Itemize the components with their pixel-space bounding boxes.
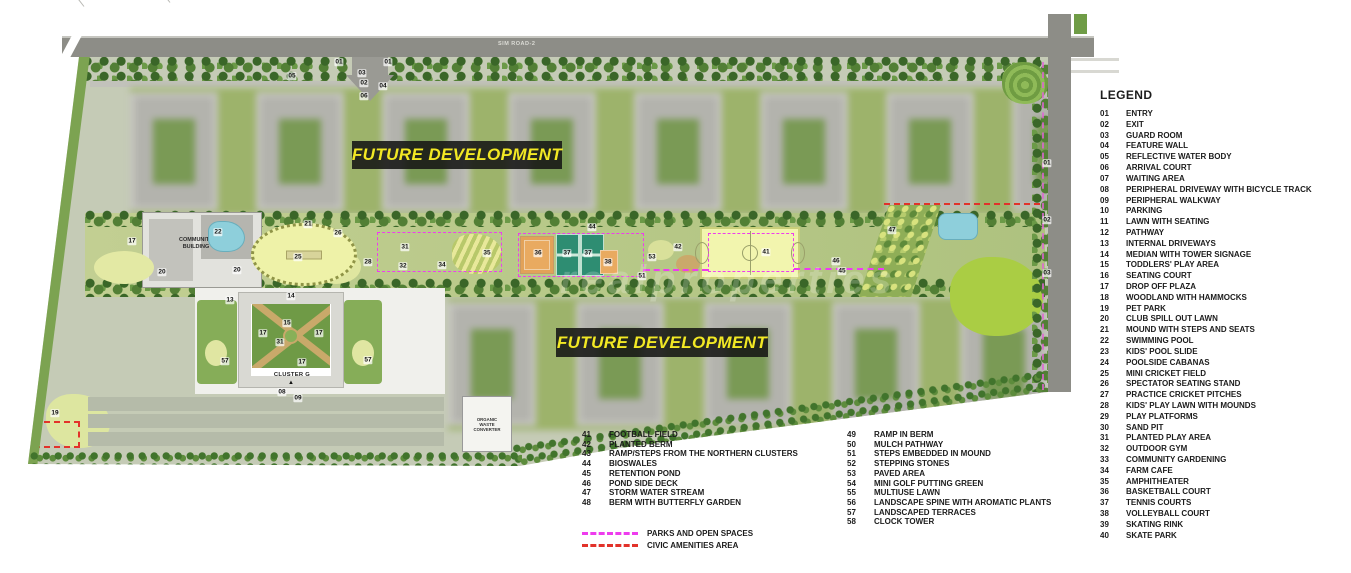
legend-item-label: SWIMMING POOL xyxy=(1126,336,1348,347)
legend-item: 58 CLOCK TOWER xyxy=(847,517,1107,527)
legend-item: 55 MULTIUSE LAWN xyxy=(847,488,1107,498)
legend-item-label: POND SIDE DECK xyxy=(609,479,678,489)
legend-list: 01 ENTRY 02 EXIT 03 GUARD ROOM 04 FEATUR… xyxy=(1100,109,1348,542)
parks-legend-label: PARKS AND OPEN SPACES xyxy=(647,529,753,538)
legend-item: 49 RAMP IN BERM xyxy=(847,430,1107,440)
legend-item-number: 48 xyxy=(582,498,609,508)
building-courtyard xyxy=(783,119,825,184)
legend-item-label: GUARD ROOM xyxy=(1126,131,1348,142)
legend-item-number: 12 xyxy=(1100,228,1126,239)
legend-item-label: DROP OFF PLAZA xyxy=(1126,282,1348,293)
legend-item-label: STEPPING STONES xyxy=(874,459,949,469)
road-median xyxy=(1074,14,1087,34)
legend-item-number: 07 xyxy=(1100,174,1126,185)
legend-item: 54 MINI GOLF PUTTING GREEN xyxy=(847,479,1107,489)
legend-item: 41 FOOTBALL FIELD xyxy=(582,430,842,440)
legend-item: 18 WOODLAND WITH HAMMOCKS xyxy=(1100,293,1348,304)
legend-item-label: SKATING RINK xyxy=(1126,520,1348,531)
legend-item: 57 LANDSCAPED TERRACES xyxy=(847,508,1107,518)
parks-open-space-boundary xyxy=(644,269,708,271)
entry-driveway xyxy=(352,57,388,77)
legend-item-number: 18 xyxy=(1100,293,1126,304)
legend-item-label: BIOSWALES xyxy=(609,459,657,469)
legend-item-label: AMPHITHEATER xyxy=(1126,477,1348,488)
legend-item-number: 16 xyxy=(1100,271,1126,282)
legend-item-label: VOLLEYBALL COURT xyxy=(1126,509,1348,520)
legend-item-label: PERIPHERAL WALKWAY xyxy=(1126,196,1348,207)
legend-item: 51 STEPS EMBEDDED IN MOUND xyxy=(847,449,1107,459)
legend-item-number: 25 xyxy=(1100,369,1126,380)
legend-item-label: PET PARK xyxy=(1126,304,1348,315)
parks-dash-sample xyxy=(582,532,638,535)
legend-item: 45 RETENTION POND xyxy=(582,469,842,479)
peripheral-driveway xyxy=(90,81,1040,87)
legend-item: 04 FEATURE WALL xyxy=(1100,141,1348,152)
building-courtyard xyxy=(153,119,195,184)
legend-title: LEGEND xyxy=(1100,88,1348,102)
legend-item-label: FOOTBALL FIELD xyxy=(609,430,678,440)
road-stub xyxy=(1071,58,1119,61)
north-pointer: ▲ xyxy=(288,380,294,386)
road-stub xyxy=(1071,70,1119,73)
legend-item-label: RAMP IN BERM xyxy=(874,430,933,440)
legend-item-label: MEDIAN WITH TOWER SIGNAGE xyxy=(1126,250,1348,261)
legend-item-label: CLOCK TOWER xyxy=(874,517,934,527)
parks-open-space-boundary xyxy=(1042,62,1044,390)
legend-item: 39 SKATING RINK xyxy=(1100,520,1348,531)
tree-lined-parking-row xyxy=(88,432,444,446)
building-block xyxy=(634,92,722,211)
legend-item-number: 22 xyxy=(1100,336,1126,347)
legend-item-label: SAND PIT xyxy=(1126,423,1348,434)
cricket-pitch xyxy=(286,250,322,259)
legend-item-label: STEPS EMBEDDED IN MOUND xyxy=(874,449,991,459)
legend-item-number: 52 xyxy=(847,459,874,469)
parks-open-space-boundary xyxy=(377,232,502,272)
legend-item: 34 FARM CAFE xyxy=(1100,466,1348,477)
legend-item-label: MINI CRICKET FIELD xyxy=(1126,369,1348,380)
legend-item: 19 PET PARK xyxy=(1100,304,1348,315)
legend-item: 09 PERIPHERAL WALKWAY xyxy=(1100,196,1348,207)
legend-item-number: 08 xyxy=(1100,185,1126,196)
civic-legend-label: CIVIC AMENITIES AREA xyxy=(647,541,738,550)
parks-legend-row: PARKS AND OPEN SPACES xyxy=(582,527,753,539)
legend-item-number: 05 xyxy=(1100,152,1126,163)
legend-item: 15 TODDLERS' PLAY AREA xyxy=(1100,260,1348,271)
sim-road xyxy=(62,36,1094,57)
civic-dash-sample xyxy=(582,544,638,547)
civic-legend-row: CIVIC AMENITIES AREA xyxy=(582,539,753,551)
legend-item-number: 43 xyxy=(582,449,609,459)
legend-item-label: PRACTICE CRICKET PITCHES xyxy=(1126,390,1348,401)
site-plan-page: SIM ROAD-2 xyxy=(0,0,1351,573)
future-development-label-south: FUTURE DEVELOPMENT xyxy=(556,328,768,357)
legend-item-label: BASKETBALL COURT xyxy=(1126,487,1348,498)
legend-item: 46 POND SIDE DECK xyxy=(582,479,842,489)
legend-item-label: LAWN WITH SEATING xyxy=(1126,217,1348,228)
legend-item: 48 BERM WITH BUTTERFLY GARDEN xyxy=(582,498,842,508)
side-road xyxy=(1048,14,1071,392)
legend-item: 22 SWIMMING POOL xyxy=(1100,336,1348,347)
legend-item-label: COMMUNITY GARDENING xyxy=(1126,455,1348,466)
survey-line xyxy=(41,0,85,7)
mini-cricket-field xyxy=(251,223,357,286)
legend-item-number: 23 xyxy=(1100,347,1126,358)
building-wing xyxy=(239,304,251,376)
legend-panel: LEGEND 01 ENTRY 02 EXIT 03 GUARD ROOM xyxy=(1100,88,1348,542)
legend-item: 03 GUARD ROOM xyxy=(1100,131,1348,142)
legend-item-label: PLAY PLATFORMS xyxy=(1126,412,1348,423)
legend-item: 36 BASKETBALL COURT xyxy=(1100,487,1348,498)
facility-legend-column-b: 49 RAMP IN BERM 50 MULCH PATHWAY 51 STEP… xyxy=(847,430,1107,527)
legend-item-number: 44 xyxy=(582,459,609,469)
building-courtyard xyxy=(279,119,321,184)
legend-item: 11 LAWN WITH SEATING xyxy=(1100,217,1348,228)
legend-item-label: INTERNAL DRIVEWAYS xyxy=(1126,239,1348,250)
legend-item-number: 10 xyxy=(1100,206,1126,217)
legend-item-number: 11 xyxy=(1100,217,1126,228)
parks-open-space-boundary xyxy=(794,268,884,270)
legend-item-number: 19 xyxy=(1100,304,1126,315)
legend-item-number: 51 xyxy=(847,449,874,459)
organic-waste-label: ORGANIC WASTE CONVERTER xyxy=(470,417,504,432)
legend-item-label: REFLECTIVE WATER BODY xyxy=(1126,152,1348,163)
tree-lined-parking-row xyxy=(88,397,444,411)
legend-item-label: LANDSCAPED TERRACES xyxy=(874,508,976,518)
building-block xyxy=(130,92,218,211)
legend-item-number: 29 xyxy=(1100,412,1126,423)
building-wing xyxy=(331,304,343,376)
legend-item: 37 TENNIS COURTS xyxy=(1100,498,1348,509)
civic-amenities-boundary xyxy=(884,203,1040,205)
field-arc xyxy=(695,242,709,264)
garden-lawn xyxy=(205,340,227,366)
legend-item-number: 40 xyxy=(1100,531,1126,542)
legend-item: 21 MOUND WITH STEPS AND SEATS xyxy=(1100,325,1348,336)
legend-item: 30 SAND PIT xyxy=(1100,423,1348,434)
legend-item-number: 50 xyxy=(847,440,874,450)
legend-item-number: 14 xyxy=(1100,250,1126,261)
organic-waste-converter: ORGANIC WASTE CONVERTER xyxy=(462,396,512,452)
legend-item-number: 27 xyxy=(1100,390,1126,401)
legend-item-number: 49 xyxy=(847,430,874,440)
legend-item-number: 55 xyxy=(847,488,874,498)
legend-item: 23 KIDS' POOL SLIDE xyxy=(1100,347,1348,358)
building-courtyard xyxy=(909,119,951,184)
building-block xyxy=(886,92,974,211)
legend-item-label: MULTIUSE LAWN xyxy=(874,488,940,498)
legend-item: 29 PLAY PLATFORMS xyxy=(1100,412,1348,423)
building-block xyxy=(256,92,344,211)
legend-item: 12 PATHWAY xyxy=(1100,228,1348,239)
legend-item: 20 CLUB SPILL OUT LAWN xyxy=(1100,314,1348,325)
building-courtyard xyxy=(657,119,699,184)
legend-item: 17 DROP OFF PLAZA xyxy=(1100,282,1348,293)
legend-item-label: ENTRY xyxy=(1126,109,1348,120)
legend-item-label: TODDLERS' PLAY AREA xyxy=(1126,260,1348,271)
legend-item: 47 STORM WATER STREAM xyxy=(582,488,842,498)
legend-item: 40 SKATE PARK xyxy=(1100,531,1348,542)
legend-item-number: 56 xyxy=(847,498,874,508)
legend-item-number: 58 xyxy=(847,517,874,527)
legend-item-label: PATHWAY xyxy=(1126,228,1348,239)
legend-item: 16 SEATING COURT xyxy=(1100,271,1348,282)
legend-item-label: PLANTED BERM xyxy=(609,440,673,450)
legend-item: 08 PERIPHERAL DRIVEWAY WITH BICYCLE TRAC… xyxy=(1100,185,1348,196)
legend-item: 52 STEPPING STONES xyxy=(847,459,1107,469)
legend-item: 27 PRACTICE CRICKET PITCHES xyxy=(1100,390,1348,401)
future-development-block-row-north xyxy=(130,88,1045,215)
building-roof xyxy=(149,219,193,281)
legend-item-label: PARKING xyxy=(1126,206,1348,217)
parks-open-space-boundary xyxy=(708,233,794,272)
legend-item-number: 01 xyxy=(1100,109,1126,120)
paved-area xyxy=(648,240,674,260)
legend-item: 02 EXIT xyxy=(1100,120,1348,131)
legend-item: 01 ENTRY xyxy=(1100,109,1348,120)
future-development-label-north: FUTURE DEVELOPMENT xyxy=(352,141,562,169)
cluster-garden xyxy=(344,300,382,384)
legend-item-number: 57 xyxy=(847,508,874,518)
survey-line xyxy=(131,0,170,3)
area-type-legend: PARKS AND OPEN SPACES CIVIC AMENITIES AR… xyxy=(582,527,753,551)
legend-item-label: SKATE PARK xyxy=(1126,531,1348,542)
legend-item-number: 24 xyxy=(1100,358,1126,369)
legend-item-number: 54 xyxy=(847,479,874,489)
legend-item: 56 LANDSCAPE SPINE WITH AROMATIC PLANTS xyxy=(847,498,1107,508)
courtyard-center xyxy=(283,328,299,344)
legend-item: 38 VOLLEYBALL COURT xyxy=(1100,509,1348,520)
legend-item: 14 MEDIAN WITH TOWER SIGNAGE xyxy=(1100,250,1348,261)
legend-item-label: MINI GOLF PUTTING GREEN xyxy=(874,479,983,489)
legend-item-label: OUTDOOR GYM xyxy=(1126,444,1348,455)
legend-item-label: SEATING COURT xyxy=(1126,271,1348,282)
legend-item: 25 MINI CRICKET FIELD xyxy=(1100,369,1348,380)
legend-item-number: 41 xyxy=(582,430,609,440)
legend-item: 06 ARRIVAL COURT xyxy=(1100,163,1348,174)
legend-item: 32 OUTDOOR GYM xyxy=(1100,444,1348,455)
legend-item: 26 SPECTATOR SEATING STAND xyxy=(1100,379,1348,390)
legend-item-label: MULCH PATHWAY xyxy=(874,440,943,450)
legend-item-label: ARRIVAL COURT xyxy=(1126,163,1348,174)
legend-item-label: POOLSIDE CABANAS xyxy=(1126,358,1348,369)
swimming-pool xyxy=(208,221,245,252)
arrival-court xyxy=(346,75,394,101)
legend-item: 33 COMMUNITY GARDENING xyxy=(1100,455,1348,466)
spill-out-lawn xyxy=(94,251,154,284)
legend-item-label: STORM WATER STREAM xyxy=(609,488,704,498)
legend-item-number: 02 xyxy=(1100,120,1126,131)
legend-item: 50 MULCH PATHWAY xyxy=(847,440,1107,450)
legend-item-label: WOODLAND WITH HAMMOCKS xyxy=(1126,293,1348,304)
building-courtyard xyxy=(855,329,897,399)
tree-row-top xyxy=(82,56,1040,81)
legend-item-label: KIDS' PLAY LAWN WITH MOUNDS xyxy=(1126,401,1348,412)
building-block xyxy=(760,92,848,211)
legend-item-number: 47 xyxy=(582,488,609,498)
retention-pond xyxy=(938,213,978,240)
legend-item-number: 09 xyxy=(1100,196,1126,207)
legend-item-number: 53 xyxy=(847,469,874,479)
garden-lawn xyxy=(352,340,374,366)
road-name-label: SIM ROAD-2 xyxy=(498,41,535,47)
community-building xyxy=(142,212,262,288)
legend-item-label: SPECTATOR SEATING STAND xyxy=(1126,379,1348,390)
legend-item-number: 21 xyxy=(1100,325,1126,336)
legend-item: 31 PLANTED PLAY AREA xyxy=(1100,433,1348,444)
legend-item-number: 06 xyxy=(1100,163,1126,174)
legend-item-label: RETENTION POND xyxy=(609,469,681,479)
legend-item-number: 28 xyxy=(1100,401,1126,412)
parks-open-space-boundary xyxy=(518,233,644,277)
legend-item-number: 46 xyxy=(582,479,609,489)
legend-item: 43 RAMP/STEPS FROM THE NORTHERN CLUSTERS xyxy=(582,449,842,459)
legend-item-label: EXIT xyxy=(1126,120,1348,131)
legend-item: 44 BIOSWALES xyxy=(582,459,842,469)
legend-item-label: PERIPHERAL DRIVEWAY WITH BICYCLE TRACK xyxy=(1126,185,1348,196)
cluster-courtyard xyxy=(252,304,330,368)
legend-item-label: MOUND WITH STEPS AND SEATS xyxy=(1126,325,1348,336)
legend-item-label: FEATURE WALL xyxy=(1126,141,1348,152)
legend-item-label: WAITING AREA xyxy=(1126,174,1348,185)
tree-lined-parking-row xyxy=(88,414,444,428)
legend-item-label: RAMP/STEPS FROM THE NORTHERN CLUSTERS xyxy=(609,449,798,459)
building-wing xyxy=(239,293,343,304)
legend-item-number: 26 xyxy=(1100,379,1126,390)
legend-item-number: 04 xyxy=(1100,141,1126,152)
legend-item: 28 KIDS' PLAY LAWN WITH MOUNDS xyxy=(1100,401,1348,412)
legend-item: 35 AMPHITHEATER xyxy=(1100,477,1348,488)
building-courtyard xyxy=(471,329,513,399)
cluster-garden xyxy=(197,300,237,384)
legend-item-number: 20 xyxy=(1100,314,1126,325)
legend-item: 10 PARKING xyxy=(1100,206,1348,217)
multiuse-lawn xyxy=(950,257,1043,336)
legend-item-label: CLUB SPILL OUT LAWN xyxy=(1126,314,1348,325)
legend-item-number: 45 xyxy=(582,469,609,479)
legend-item-number: 17 xyxy=(1100,282,1126,293)
legend-item: 24 POOLSIDE CABANAS xyxy=(1100,358,1348,369)
facility-legend-column-a: 41 FOOTBALL FIELD 42 PLANTED BERM 43 RAM… xyxy=(582,430,842,508)
legend-item-label: PAVED AREA xyxy=(874,469,925,479)
building-block xyxy=(576,302,664,426)
tree-border-south xyxy=(30,451,522,466)
legend-item-label: BERM WITH BUTTERFLY GARDEN xyxy=(609,498,741,508)
legend-item: 13 INTERNAL DRIVEWAYS xyxy=(1100,239,1348,250)
legend-item-label: PLANTED PLAY AREA xyxy=(1126,433,1348,444)
legend-item-number: 03 xyxy=(1100,131,1126,142)
legend-item-label: LANDSCAPE SPINE WITH AROMATIC PLANTS xyxy=(874,498,1051,508)
legend-item-label: FARM CAFE xyxy=(1126,466,1348,477)
legend-item: 42 PLANTED BERM xyxy=(582,440,842,450)
legend-item-label: KIDS' POOL SLIDE xyxy=(1126,347,1348,358)
cluster-g-label: CLUSTER G xyxy=(262,372,322,378)
legend-item-number: 13 xyxy=(1100,239,1126,250)
legend-item: 07 WAITING AREA xyxy=(1100,174,1348,185)
legend-item-number: 42 xyxy=(582,440,609,450)
legend-item-label: TENNIS COURTS xyxy=(1126,498,1348,509)
legend-item-number: 15 xyxy=(1100,260,1126,271)
legend-item: 05 REFLECTIVE WATER BODY xyxy=(1100,152,1348,163)
legend-item: 53 PAVED AREA xyxy=(847,469,1107,479)
tree-border-east xyxy=(1032,58,1048,392)
